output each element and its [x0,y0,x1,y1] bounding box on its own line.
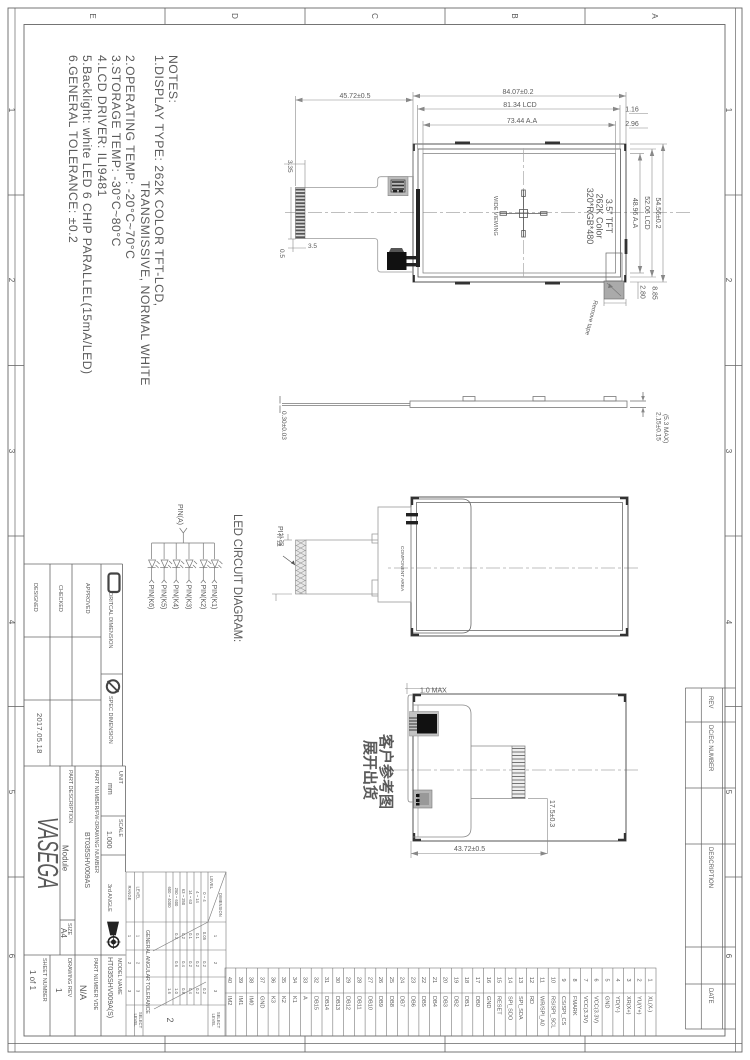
svg-text:SPI_SDA: SPI_SDA [517,996,523,1020]
svg-text:(5.3 MAX): (5.3 MAX) [662,414,669,443]
svg-text:GND: GND [259,996,265,1008]
svg-text:GND: GND [603,996,609,1008]
svg-text:DB7: DB7 [399,996,405,1007]
svg-text:XR(X+): XR(X+) [625,996,631,1015]
svg-text:PIN(K6): PIN(K6) [147,585,154,610]
svg-text:DATE: DATE [707,988,713,1004]
svg-text:0.8: 0.8 [181,988,186,994]
svg-text:3: 3 [625,978,631,981]
svg-text:0.05: 0.05 [202,932,207,941]
svg-text:客户参考图: 客户参考图 [377,733,395,809]
svg-text:2017.05.18: 2017.05.18 [35,713,44,754]
svg-text:DB11: DB11 [356,996,362,1010]
svg-text:K1: K1 [291,996,297,1003]
svg-text:YD(Y-): YD(Y-) [614,996,620,1013]
svg-text:5: 5 [603,978,609,981]
svg-text:14: 14 [506,977,512,983]
svg-text:RESET: RESET [496,996,502,1015]
svg-text:33: 33 [302,977,308,983]
svg-text:DB3: DB3 [442,996,448,1007]
svg-text:A: A [302,996,308,1000]
svg-text:0 ~ 4: 0 ~ 4 [202,892,207,902]
svg-text:HT035SHV009A(S): HT035SHV009A(S) [106,957,113,1018]
svg-text:8: 8 [571,978,577,981]
svg-text:PI补强: PI补强 [276,526,285,547]
svg-text:81.34 LCD: 81.34 LCD [503,102,536,109]
svg-text:43.72±0.5: 43.72±0.5 [454,846,485,853]
svg-text:PIN(K1): PIN(K1) [210,585,217,610]
svg-text:3.5" TFT: 3.5" TFT [604,199,614,234]
svg-text:A: A [650,13,659,19]
svg-text:22: 22 [420,977,426,983]
svg-text:28: 28 [356,977,362,983]
svg-text:0.4: 0.4 [181,961,186,967]
svg-text:3.STORAGE TEMP: -30°C~80°C: 3.STORAGE TEMP: -30°C~80°C [109,55,123,247]
svg-text:29: 29 [345,977,351,983]
svg-text:21: 21 [431,977,437,983]
svg-text:3.35: 3.35 [286,160,293,173]
svg-text:73.44 A.A: 73.44 A.A [507,118,538,125]
svg-text:DC/EC NUMBER: DC/EC NUMBER [707,725,713,772]
svg-text:SPI_SDO: SPI_SDO [506,996,512,1021]
svg-text:3.5: 3.5 [308,243,317,250]
svg-text:4: 4 [724,620,733,625]
svg-text:0.3: 0.3 [174,933,179,939]
svg-text:GND: GND [485,996,491,1008]
svg-text:MODEL NAME: MODEL NAME [116,958,122,995]
svg-text:K3: K3 [269,996,275,1003]
svg-text:3: 3 [724,449,733,454]
svg-text:32: 32 [312,977,318,983]
svg-text:0.6: 0.6 [174,961,179,967]
svg-text:0.5: 0.5 [278,249,285,258]
svg-text:10: 10 [549,977,555,983]
svg-text:37: 37 [259,977,265,983]
svg-text:20: 20 [442,977,448,983]
svg-text:LED CIRCUIT DIAGRAM:: LED CIRCUIT DIAGRAM: [231,514,243,642]
svg-text:N/A: N/A [78,985,88,1000]
svg-text:DESCRIPTION: DESCRIPTION [707,847,713,888]
svg-text:SCALE: SCALE [117,819,123,837]
svg-text:3: 3 [7,449,16,454]
svg-text:63 ~ 250: 63 ~ 250 [181,889,186,906]
svg-text:IM2: IM2 [226,996,232,1005]
svg-text:27: 27 [366,977,372,983]
svg-text:B: B [510,13,519,18]
svg-text:262K Color: 262K Color [595,193,605,238]
svg-text:26: 26 [377,977,383,983]
svg-text:2: 2 [165,1017,175,1022]
svg-text:45.72±0.5: 45.72±0.5 [339,93,370,100]
svg-text:4.LCD DRIVER: ILI9481: 4.LCD DRIVER: ILI9481 [95,55,109,197]
svg-text:31: 31 [323,977,329,983]
svg-text:1.0 MAX: 1.0 MAX [420,688,447,695]
svg-text:DB1: DB1 [463,996,469,1007]
svg-text:TRANSMISSIVE, NORMAL WHITE: TRANSMISSIVE, NORMAL WHITE [138,181,152,386]
svg-text:A4: A4 [59,928,68,938]
svg-text:PART NUMBER VDE: PART NUMBER VDE [92,958,98,1011]
svg-text:0.2: 0.2 [195,961,200,967]
svg-text:PIN(A): PIN(A) [176,504,183,525]
svg-text:1: 1 [7,108,16,113]
svg-text:PIN(K5): PIN(K5) [160,585,167,610]
svg-text:30: 30 [334,977,340,983]
svg-text:DB10: DB10 [366,996,372,1010]
svg-text:0.2: 0.2 [195,988,200,994]
svg-text:5: 5 [724,790,733,795]
svg-text:DB8: DB8 [388,996,394,1007]
svg-text:2: 2 [724,278,733,283]
svg-text:1: 1 [724,108,733,113]
svg-text:1.0: 1.0 [174,988,179,994]
svg-text:19: 19 [453,977,459,983]
svg-text:REV: REV [707,696,713,708]
svg-text:6: 6 [724,954,733,959]
svg-text:0.1: 0.1 [188,933,193,939]
svg-text:RS/SPI_SCL: RS/SPI_SCL [549,996,555,1028]
svg-text:0.2: 0.2 [181,933,186,939]
svg-text:2.80: 2.80 [639,285,646,299]
svg-text:GENERAL ANGULAR TOLERANCE: GENERAL ANGULAR TOLERANCE [144,930,150,1014]
svg-text:1.DISPLAY TYPE: 262K COLO: 1.DISPLAY TYPE: 262K COLOR TFT-LCD, [152,55,166,307]
svg-text:DB14: DB14 [323,996,329,1010]
svg-text:展开出货: 展开出货 [361,740,379,800]
svg-text:0.2: 0.2 [188,961,193,967]
svg-text:VCC(3.3V): VCC(3.3V) [582,996,588,1023]
svg-text:DRAWING REV: DRAWING REV [66,958,72,998]
svg-text:PART NUMBER/FW-DRAWING NUMBER: PART NUMBER/FW-DRAWING NUMBER [93,770,99,873]
svg-text:2.96: 2.96 [625,121,639,128]
svg-text:17: 17 [474,977,480,983]
svg-text:RANGE: RANGE [127,886,132,901]
svg-text:11: 11 [539,977,545,983]
svg-text:600 ~ 4000: 600 ~ 4000 [167,886,172,908]
svg-text:7: 7 [582,978,588,981]
svg-text:DB6: DB6 [409,996,415,1007]
svg-text:C: C [370,13,379,19]
svg-text:12: 12 [528,977,534,983]
svg-text:6.GENERAL TOLERANCE: ±0.2: 6.GENERAL TOLERANCE: ±0.2 [66,55,80,243]
svg-text:DB12: DB12 [345,996,351,1010]
svg-text:WR/SPI_A0: WR/SPI_A0 [539,996,545,1026]
svg-text:DB13: DB13 [334,996,340,1010]
svg-text:DB9: DB9 [377,996,383,1007]
svg-text:52.06 LCD: 52.06 LCD [643,196,650,229]
svg-text:40: 40 [226,977,232,983]
svg-text:0.4: 0.4 [188,988,193,994]
svg-text:LEVEL: LEVEL [133,1013,138,1027]
svg-text:PART DESCRIPTION: PART DESCRIPTION [67,770,73,823]
svg-text:IM0: IM0 [248,996,254,1005]
svg-text:DB5: DB5 [420,996,426,1007]
svg-text:DB2: DB2 [453,996,459,1007]
svg-text:LEVEL: LEVEL [209,876,214,890]
svg-text:0.30±0.03: 0.30±0.03 [280,411,287,440]
svg-text:5.Backlight: white LED 6 C: 5.Backlight: white LED 6 CHIP PARALLEL(1… [80,55,94,375]
svg-text:1: 1 [54,988,63,993]
svg-text:13: 13 [517,977,523,983]
svg-text:0.2: 0.2 [202,988,207,994]
svg-text:UNIT: UNIT [117,771,123,784]
svg-text:DESIGNED: DESIGNED [32,583,38,612]
svg-text:9: 9 [560,978,566,981]
svg-text:SPEC DIMENSION: SPEC DIMENSION [107,696,113,744]
svg-text:0.1: 0.1 [195,933,200,939]
svg-text:38: 38 [248,977,254,983]
svg-text:250 ~ 600: 250 ~ 600 [174,888,179,907]
svg-text:FMARK: FMARK [571,996,577,1016]
svg-text:2: 2 [636,978,642,981]
svg-text:5: 5 [7,790,16,795]
svg-text:K2: K2 [280,996,286,1003]
svg-text:24: 24 [399,977,405,983]
svg-text:DIMENSION: DIMENSION [218,893,223,917]
svg-text:ORITCAL DIMENSION: ORITCAL DIMENSION [107,592,113,648]
svg-text:36: 36 [269,977,275,983]
svg-text:4: 4 [614,978,620,981]
svg-text:15: 15 [496,977,502,983]
svg-text:35: 35 [280,977,286,983]
svg-text:mm: mm [106,783,113,795]
svg-text:23: 23 [409,977,415,983]
svg-text:XL(X-): XL(X-) [646,996,652,1012]
svg-text:6: 6 [593,978,599,981]
svg-text:1 of 1: 1 of 1 [28,970,37,991]
svg-text:2.15±0.15: 2.15±0.15 [655,412,662,441]
svg-text:WIDE VIEWING: WIDE VIEWING [492,196,498,236]
svg-text:1.16: 1.16 [625,107,639,114]
svg-text:25: 25 [388,977,394,983]
svg-text:CHECKED: CHECKED [57,585,63,612]
svg-text:18: 18 [463,977,469,983]
svg-text:IM1: IM1 [237,996,243,1005]
svg-text:3rd ANGLE: 3rd ANGLE [106,884,112,912]
svg-text:COMPONENT AREA: COMPONENT AREA [399,546,405,592]
svg-text:1.000: 1.000 [105,831,112,849]
svg-text:VASEGA: VASEGA [31,817,63,889]
svg-text:LEVEL: LEVEL [211,1013,216,1027]
svg-text:1.6: 1.6 [167,988,172,994]
svg-text:4: 4 [7,620,16,625]
svg-text:48.96 A.A: 48.96 A.A [631,198,638,229]
svg-text:54.56±0.2: 54.56±0.2 [654,197,661,228]
svg-text:DB15: DB15 [312,996,318,1010]
svg-text:D: D [230,13,239,19]
svg-text:PIN(K3): PIN(K3) [185,585,192,610]
svg-text:6: 6 [7,954,16,959]
svg-text:APPROVED: APPROVED [84,583,90,614]
svg-text:17.5±0.3: 17.5±0.3 [548,800,555,827]
svg-text:E: E [88,13,97,18]
svg-text:2: 2 [7,278,16,283]
svg-text:PIN(K2): PIN(K2) [199,585,206,610]
svg-text:84.07±0.2: 84.07±0.2 [502,89,533,96]
svg-text:SHEET NUMBER: SHEET NUMBER [41,958,47,1002]
svg-text:NOTES:: NOTES: [166,55,180,103]
svg-text:320*RGB*480: 320*RGB*480 [585,188,595,245]
svg-text:39: 39 [237,977,243,983]
svg-text:CS/SPI_CS: CS/SPI_CS [560,996,566,1025]
svg-text:LEVEL: LEVEL [136,886,141,900]
svg-text:1: 1 [646,978,652,981]
svg-text:DB0: DB0 [474,996,480,1007]
svg-text:RD: RD [528,996,534,1004]
svg-text:0.2: 0.2 [202,961,207,967]
svg-text:4 ~ 14: 4 ~ 14 [195,891,200,903]
svg-text:34: 34 [291,977,297,983]
svg-text:2.OPERATING TEMP: -20°C~70: 2.OPERATING TEMP: -20°C~70°C [123,55,137,259]
svg-text:14 ~ 63: 14 ~ 63 [188,890,193,905]
svg-text:8.85: 8.85 [651,286,658,300]
svg-text:16: 16 [485,977,491,983]
svg-text:PIN(K4): PIN(K4) [172,585,179,610]
svg-text:YU(Y+): YU(Y+) [636,996,642,1015]
svg-text:VCC(3.3V): VCC(3.3V) [593,996,599,1023]
svg-text:BT035SHV009AS: BT035SHV009AS [83,832,90,888]
svg-text:DB4: DB4 [431,996,437,1007]
